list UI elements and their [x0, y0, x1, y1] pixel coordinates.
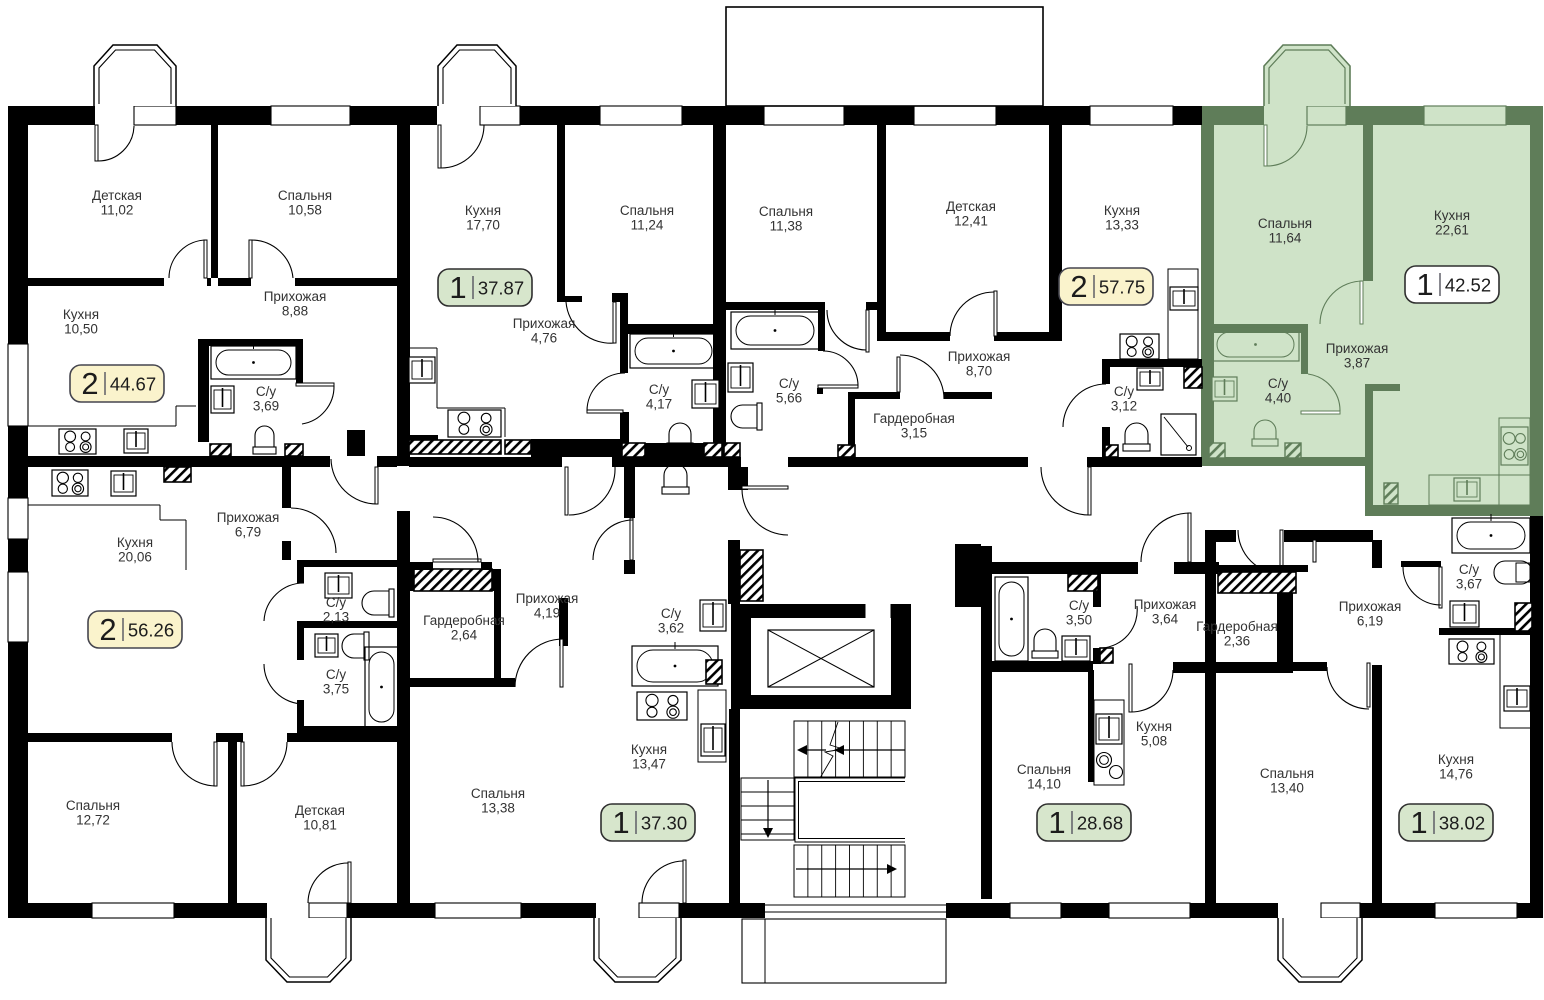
svg-text:8,70: 8,70 — [966, 364, 992, 379]
svg-text:Детская: Детская — [92, 188, 142, 203]
svg-text:Детская: Детская — [946, 199, 996, 214]
svg-text:С/у: С/у — [1459, 562, 1480, 577]
svg-text:10,81: 10,81 — [303, 818, 337, 833]
svg-text:13,38: 13,38 — [481, 801, 515, 816]
svg-text:С/у: С/у — [1069, 598, 1090, 613]
svg-text:38.02: 38.02 — [1439, 813, 1485, 834]
svg-text:11,64: 11,64 — [1269, 231, 1302, 246]
svg-text:2: 2 — [81, 366, 98, 401]
svg-text:2,13: 2,13 — [323, 610, 349, 625]
svg-text:22,61: 22,61 — [1435, 223, 1469, 238]
svg-text:3,87: 3,87 — [1344, 356, 1370, 371]
svg-text:С/у: С/у — [1114, 384, 1135, 399]
svg-text:2,36: 2,36 — [1224, 634, 1250, 649]
svg-text:С/у: С/у — [326, 595, 347, 610]
svg-text:Гардеробная: Гардеробная — [1196, 619, 1278, 634]
svg-text:37.30: 37.30 — [641, 813, 687, 834]
svg-text:Спальня: Спальня — [278, 188, 332, 203]
svg-text:13,40: 13,40 — [1270, 781, 1304, 796]
svg-text:Кухня: Кухня — [63, 307, 99, 322]
svg-text:Прихожая: Прихожая — [1326, 341, 1389, 356]
svg-text:1: 1 — [1410, 805, 1427, 840]
svg-text:Прихожая: Прихожая — [513, 316, 576, 331]
svg-text:12,72: 12,72 — [76, 813, 110, 828]
svg-text:Кухня: Кухня — [1104, 203, 1140, 218]
svg-text:Спальня: Спальня — [620, 203, 674, 218]
svg-text:Прихожая: Прихожая — [516, 591, 579, 606]
svg-text:11,24: 11,24 — [631, 218, 664, 233]
svg-text:Кухня: Кухня — [465, 203, 501, 218]
svg-text:14,76: 14,76 — [1439, 767, 1473, 782]
svg-text:13,33: 13,33 — [1105, 218, 1139, 233]
svg-text:Спальня: Спальня — [471, 786, 525, 801]
svg-text:Спальня: Спальня — [1258, 216, 1312, 231]
svg-text:42.52: 42.52 — [1445, 275, 1491, 296]
svg-text:13,47: 13,47 — [632, 757, 666, 772]
svg-text:12,41: 12,41 — [954, 214, 988, 229]
svg-text:56.26: 56.26 — [128, 620, 174, 641]
svg-text:11,02: 11,02 — [101, 203, 134, 218]
svg-text:6,19: 6,19 — [1357, 614, 1383, 629]
svg-text:4,19: 4,19 — [534, 606, 560, 621]
svg-text:3,75: 3,75 — [323, 682, 349, 697]
svg-text:Спальня: Спальня — [1260, 766, 1314, 781]
svg-text:Прихожая: Прихожая — [1339, 599, 1402, 614]
svg-text:Кухня: Кухня — [117, 535, 153, 550]
svg-text:Гардеробная: Гардеробная — [423, 613, 505, 628]
svg-text:С/у: С/у — [1268, 376, 1289, 391]
svg-text:17,70: 17,70 — [466, 218, 500, 233]
svg-text:Прихожая: Прихожая — [217, 510, 280, 525]
svg-text:Спальня: Спальня — [759, 204, 813, 219]
svg-text:Прихожая: Прихожая — [264, 289, 327, 304]
svg-text:1: 1 — [1416, 267, 1433, 302]
svg-text:Гардеробная: Гардеробная — [873, 411, 955, 426]
svg-text:1: 1 — [449, 270, 466, 305]
svg-text:3,62: 3,62 — [658, 621, 684, 636]
svg-text:20,06: 20,06 — [118, 550, 152, 565]
svg-text:3,67: 3,67 — [1456, 577, 1482, 592]
svg-text:5,66: 5,66 — [776, 391, 802, 406]
svg-text:3,12: 3,12 — [1111, 399, 1137, 414]
svg-text:3,15: 3,15 — [901, 426, 927, 441]
svg-text:37.87: 37.87 — [478, 278, 524, 299]
svg-text:Прихожая: Прихожая — [1134, 597, 1197, 612]
svg-text:4,17: 4,17 — [646, 397, 672, 412]
svg-text:10,50: 10,50 — [64, 322, 98, 337]
svg-text:Детская: Детская — [295, 803, 345, 818]
svg-text:1: 1 — [1048, 805, 1065, 840]
svg-text:44.67: 44.67 — [110, 374, 156, 395]
svg-text:11,38: 11,38 — [770, 219, 803, 234]
svg-text:10,58: 10,58 — [288, 203, 322, 218]
svg-text:5,08: 5,08 — [1141, 734, 1167, 749]
svg-text:1: 1 — [612, 805, 629, 840]
svg-text:Кухня: Кухня — [1438, 752, 1474, 767]
svg-text:2: 2 — [99, 612, 116, 647]
svg-text:С/у: С/у — [661, 606, 682, 621]
svg-text:14,10: 14,10 — [1027, 777, 1061, 792]
svg-text:8,88: 8,88 — [282, 304, 308, 319]
svg-text:57.75: 57.75 — [1099, 277, 1145, 298]
svg-text:6,79: 6,79 — [235, 525, 261, 540]
svg-text:Спальня: Спальня — [1017, 762, 1071, 777]
svg-text:4,76: 4,76 — [531, 331, 557, 346]
svg-text:Кухня: Кухня — [631, 742, 667, 757]
svg-text:3,50: 3,50 — [1066, 613, 1092, 628]
svg-text:С/у: С/у — [256, 384, 277, 399]
svg-text:3,69: 3,69 — [253, 399, 279, 414]
svg-text:4,40: 4,40 — [1265, 391, 1291, 406]
svg-text:Спальня: Спальня — [66, 798, 120, 813]
svg-text:2,64: 2,64 — [451, 628, 478, 643]
svg-text:Прихожая: Прихожая — [948, 349, 1011, 364]
svg-text:Кухня: Кухня — [1434, 208, 1470, 223]
svg-text:2: 2 — [1070, 269, 1087, 304]
svg-text:С/у: С/у — [326, 667, 347, 682]
svg-text:3,64: 3,64 — [1152, 612, 1179, 627]
svg-text:С/у: С/у — [779, 376, 800, 391]
svg-text:Кухня: Кухня — [1136, 719, 1172, 734]
svg-text:28.68: 28.68 — [1077, 813, 1123, 834]
svg-text:С/у: С/у — [649, 382, 670, 397]
